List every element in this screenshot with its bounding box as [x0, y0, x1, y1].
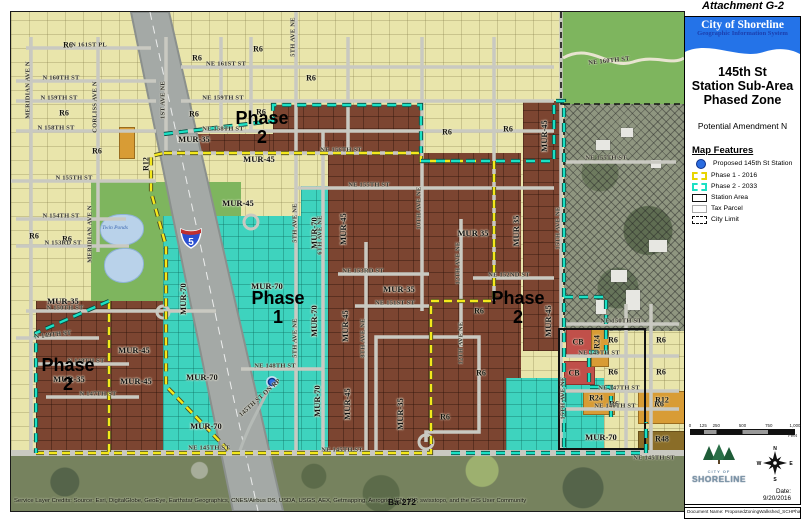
legend-item-label: Proposed 145th St Station: [713, 160, 792, 168]
panel-footer: 01252505007501,000 Feet CITY OF SHORELIN…: [685, 423, 800, 502]
svg-text:S: S: [773, 477, 777, 482]
street-label: MERIDIAN AVE N: [87, 205, 94, 263]
map-canvas: 5 Service Layer Credits: Source: Esri, D…: [10, 11, 685, 512]
pond-name-label: Twin Ponds: [102, 225, 128, 231]
tax-parcel-swatch: [692, 205, 707, 213]
zone-label: MUR-70: [186, 372, 218, 382]
legend-item-station-dot: Proposed 145th St Station: [692, 159, 800, 169]
street-label: MERIDIAN AVE N: [25, 61, 32, 119]
compass-rose: N E S W Date: 9/20/2016: [755, 444, 795, 502]
legend-item-phase2: Phase 2 - 2033: [692, 183, 800, 191]
street-label: NE 148TH ST: [254, 363, 296, 370]
phase1-swatch: [692, 172, 707, 180]
zone-label: MUR-45: [120, 376, 152, 386]
parcel-zone-label: R6: [474, 307, 484, 316]
banner-wave-decoration: [685, 44, 800, 57]
scale-tick: 500: [739, 423, 746, 428]
svg-text:5: 5: [188, 237, 194, 248]
service-layer-credits: Service Layer Credits: Source: Esri, Dig…: [14, 498, 614, 504]
phase-label: Phase2: [491, 289, 544, 327]
street-label: 5TH AVE NE: [292, 203, 299, 242]
parcel-zone-label: R6: [306, 74, 316, 83]
street-label: NE 153RD ST: [342, 268, 384, 275]
city-banner: City of Shoreline Geographic Information…: [685, 17, 800, 57]
legend-item-city-limit: City Limit: [692, 216, 800, 224]
parcel-zone-label: R6: [476, 369, 486, 378]
street-label: NE 149TH ST: [578, 350, 620, 357]
city-name: City of Shoreline: [685, 17, 800, 31]
parcel-zone-label: R6: [253, 45, 263, 54]
scale-bar-segments: [690, 429, 795, 435]
zone-label: MUR-45: [539, 120, 549, 152]
street-label: N 153RD ST: [44, 240, 81, 247]
station-dot-swatch: [696, 159, 706, 169]
street-label: NE 151ST ST: [375, 300, 415, 307]
zone-label: MUR-70: [309, 305, 319, 337]
street-label: NE 145TH ST: [188, 445, 230, 452]
parcel-zone-label: R6: [29, 232, 39, 241]
legend-item-label: Station Area: [711, 194, 748, 202]
map-date: Date: 9/20/2016: [755, 487, 795, 502]
map-title: 145th St Station Sub-Area Phased Zone: [685, 65, 800, 107]
parcel-zone-label: R6: [59, 109, 69, 118]
street-label: NE 145TH ST: [321, 447, 363, 454]
parcel-zone-label: R6: [442, 128, 452, 137]
street-label: 12TH AVE NE: [458, 322, 465, 365]
parcel-zone-label: R6: [608, 336, 618, 345]
legend-item-phase1: Phase 1 - 2016: [692, 172, 800, 180]
street-label: CORLISS AVE N: [92, 81, 99, 133]
parcel-zone-label: R24: [589, 394, 603, 403]
parcel-zone-label: R6: [189, 110, 199, 119]
legend-item-label: Phase 1 - 2016: [711, 172, 757, 180]
shoreline-logo: CITY OF SHORELINE: [690, 444, 748, 484]
legend-item-label: City Limit: [711, 216, 739, 224]
legend-item-station-area: Station Area: [692, 194, 800, 202]
street-label: NE 155TH ST: [585, 155, 627, 162]
scale-bar: 01252505007501,000 Feet: [690, 423, 795, 439]
street-label: 5TH AVE NE: [290, 17, 297, 56]
map-subtitle: Potential Amendment N: [685, 121, 800, 131]
zone-label: MUR-45: [342, 388, 352, 420]
screenshot-root: 5 Service Layer Credits: Source: Esri, D…: [0, 0, 806, 524]
svg-text:W: W: [757, 461, 762, 467]
parcel-zone-label: R6: [192, 54, 202, 63]
street-label: NE 147TH ST: [598, 385, 640, 392]
street-label: N 159TH ST: [40, 95, 77, 102]
street-label: N 161ST PL: [71, 42, 107, 49]
parcel-zone-label: R6: [656, 368, 666, 377]
compass-icon: N E S W: [756, 444, 794, 482]
parcel-zone-label: CB: [568, 369, 579, 378]
zone-label: MUR-35: [383, 284, 415, 294]
street-label: NE 152ND ST: [488, 272, 530, 279]
zone-label: MUR-70: [178, 283, 188, 315]
station-area-swatch: [692, 194, 707, 202]
zone-label: MUR-35: [395, 398, 405, 430]
phase-label: Phase2: [41, 356, 94, 394]
legend-item-tax-parcel: Tax Parcel: [692, 205, 800, 213]
logo-name: SHORELINE: [690, 474, 748, 484]
document-name: Document Name: ProposedZoningWalkshed_SC…: [684, 507, 801, 519]
map-overlay-graphics: 5: [11, 12, 684, 511]
svg-text:N: N: [773, 446, 777, 452]
parcel-zone-label: R6: [440, 413, 450, 422]
map-info-panel: City of Shoreline Geographic Information…: [684, 16, 801, 505]
parcel-zone-label: R6: [92, 147, 102, 156]
street-label: N 160TH ST: [42, 75, 79, 82]
street-label: 1ST AVE NE: [160, 81, 167, 119]
scale-unit: Feet: [788, 433, 797, 438]
scale-tick: 0: [689, 423, 691, 428]
street-label: NE 146TH ST: [594, 403, 636, 410]
phase-label: Phase2: [235, 109, 288, 147]
zone-label: MUR-70: [312, 385, 322, 417]
parcel-zone-label: R6: [656, 336, 666, 345]
zone-label: MUR-70: [585, 432, 617, 442]
zone-label: MUR 35: [511, 216, 521, 247]
street-label: 8TH AVE NE: [360, 318, 367, 357]
street-label: NE 145TH ST: [633, 455, 675, 462]
street-label: 15TH AVE NE: [555, 207, 562, 250]
street-label: N 155TH ST: [55, 175, 92, 182]
parcel-zone-label: CB: [572, 338, 583, 347]
legend: Proposed 145th St StationPhase 1 - 2016P…: [692, 159, 800, 224]
scale-tick: 125: [699, 423, 706, 428]
street-label: 6TH AVE NE: [317, 215, 324, 254]
svg-text:E: E: [789, 461, 793, 467]
zone-label: MUR-45: [243, 154, 275, 164]
zone-label: MUR-35: [178, 134, 210, 144]
parcel-zone-label: R12: [655, 396, 669, 405]
street-label: N 154TH ST: [42, 213, 79, 220]
city-limit-swatch: [692, 216, 707, 224]
city-subtitle: Geographic Information System: [685, 30, 800, 37]
attachment-label: Attachment G-2: [686, 0, 800, 12]
legend-item-label: Phase 2 - 2033: [711, 183, 757, 191]
scale-tick: 750: [765, 423, 772, 428]
street-label: NE 155TH ST: [348, 182, 390, 189]
street-label: 12TH AVE NE: [455, 242, 462, 285]
legend-item-label: Tax Parcel: [711, 205, 743, 213]
zone-label: MUR-70: [190, 421, 222, 431]
zone-label: MUR 35: [458, 228, 489, 238]
sheet-label: Ba-272: [388, 497, 416, 507]
trees-icon: [699, 444, 739, 466]
street-label: 10TH AVE NE: [416, 187, 423, 230]
zone-label: MUR-45: [222, 198, 254, 208]
parcel-zone-label: R48: [655, 435, 669, 444]
parcel-zone-label: R24: [593, 335, 602, 349]
street-label: 15TH AVE NE: [560, 377, 567, 420]
scale-tick: 1,000: [790, 423, 801, 428]
phase-label: Phase1: [251, 289, 304, 327]
zone-label: MUR-45: [340, 310, 350, 342]
street-label: NE 150TH ST: [600, 318, 642, 325]
street-label: N 158TH ST: [37, 125, 74, 132]
parcel-zone-label: R6: [503, 125, 513, 134]
street-label: NE 156TH ST: [320, 147, 362, 154]
legend-title: Map Features: [692, 145, 800, 156]
scale-tick: 250: [713, 423, 720, 428]
street-label: NE 161ST ST: [206, 61, 246, 68]
street-label: NE 159TH ST: [202, 95, 244, 102]
zone-label: MUR-45: [338, 213, 348, 245]
zone-label: MUR-45: [118, 345, 150, 355]
parcel-zone-label: R12: [142, 157, 151, 171]
phase2-swatch: [692, 183, 707, 191]
parcel-zone-label: R6: [608, 368, 618, 377]
street-label: N 150TH ST: [46, 305, 83, 312]
